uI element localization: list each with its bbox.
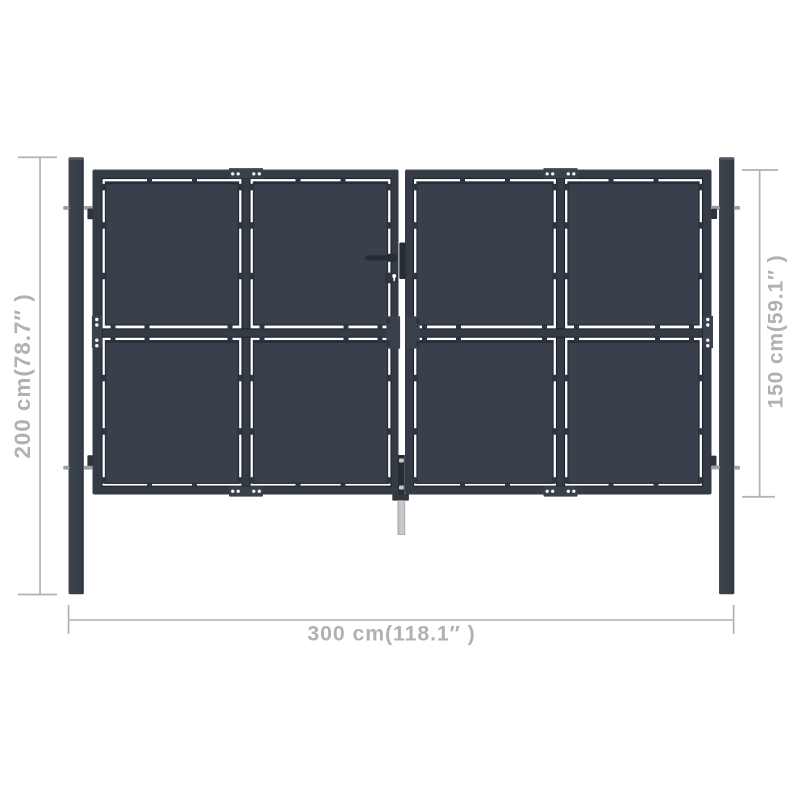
svg-text:150 cm(59.1″ ): 150 cm(59.1″ ) (764, 255, 787, 409)
svg-text:200 cm(78.7″ ): 200 cm(78.7″ ) (10, 293, 35, 458)
svg-text:300 cm(118.1″ ): 300 cm(118.1″ ) (307, 622, 475, 646)
